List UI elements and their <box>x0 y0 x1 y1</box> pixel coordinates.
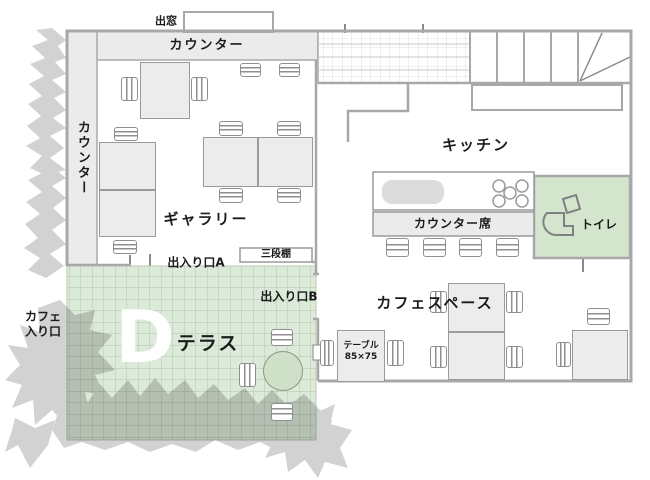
trees-layer <box>0 0 650 480</box>
tree-silhouettes <box>5 28 352 478</box>
floor-plan: 出窓カウンターカウンターギャラリーキッチンカウンター席トイレ三段棚出入り口A出入… <box>0 0 650 480</box>
